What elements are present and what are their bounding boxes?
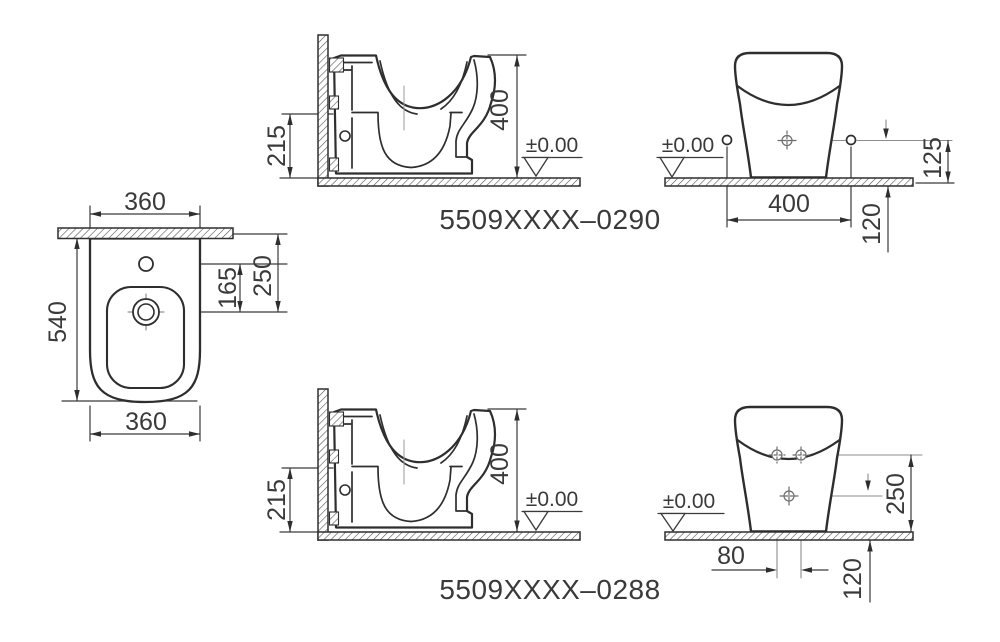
rear-0290-dim-outlet-offset: 120 xyxy=(858,203,886,245)
section-view-0288: 215 400 ±0.00 5509XXXX–0288 xyxy=(263,389,661,605)
rear-0290-floor-bar xyxy=(665,178,913,186)
plan-wall-bar xyxy=(58,228,233,239)
rear-0288-datum-icon xyxy=(661,514,685,532)
section-0290-wall-bar xyxy=(318,35,328,186)
section-0290-floor-bar xyxy=(318,178,580,186)
rear-0288-body xyxy=(735,407,842,532)
rear-0288-dim-hole-span: 80 xyxy=(717,542,745,570)
plan-dim-tap-to-drain: 165 xyxy=(214,267,242,309)
technical-drawing-page: 360 540 165 250 360 215 400 ±0.00 xyxy=(0,0,1000,642)
rear-view-0288: 80 120 250 ±0.00 xyxy=(658,407,922,602)
tap-hole-icon xyxy=(139,257,153,271)
section-0290-datum-icon xyxy=(524,158,548,177)
rear-0288-datum-label: ±0.00 xyxy=(663,490,715,513)
drain-inner-icon xyxy=(138,304,154,320)
section-view-0290: 215 400 ±0.00 5509XXXX–0290 xyxy=(263,35,661,235)
section-0288-dim-inlet-height: 215 xyxy=(263,479,291,521)
plan-dim-width-top: 360 xyxy=(124,188,166,216)
rear-0290-dim-fixing-height: 125 xyxy=(919,137,947,179)
fixing-hole-right-icon xyxy=(847,136,856,145)
product-code-0288: 5509XXXX–0288 xyxy=(439,574,660,605)
section-0288-dim-rim-height: 400 xyxy=(486,443,514,485)
rear-view-0290: 400 120 125 ±0.00 xyxy=(657,53,954,252)
rear-0288-floor-bar xyxy=(665,532,913,540)
section-0290-dim-inlet-height: 215 xyxy=(263,125,291,167)
section-0288-datum-icon xyxy=(524,512,548,531)
section-0290-body xyxy=(334,56,495,174)
plan-dim-wall-to-drain: 250 xyxy=(249,255,277,297)
section-0288-body xyxy=(334,410,495,528)
section-0290-dim-rim-height: 400 xyxy=(486,89,514,131)
fixing-hole-left-icon xyxy=(723,136,732,145)
section-0288-inlet-hole-icon xyxy=(340,485,350,495)
rear-0290-body xyxy=(735,53,842,178)
plan-dim-depth: 540 xyxy=(44,301,72,343)
rear-0290-datum-icon xyxy=(660,158,684,178)
section-0288-datum-label: ±0.00 xyxy=(526,488,578,511)
section-0288-floor-bar xyxy=(318,532,580,540)
rear-0290-datum-label: ±0.00 xyxy=(662,134,714,157)
section-0290-inlet-hole-icon xyxy=(340,131,350,141)
plan-dim-width-bottom: 360 xyxy=(125,408,167,436)
rear-0288-dim-supply-height: 250 xyxy=(882,473,910,515)
rear-0288-dim-outlet-offset: 120 xyxy=(839,558,867,600)
rear-0290-dim-fixing-span: 400 xyxy=(768,190,810,218)
product-code-0290: 5509XXXX–0290 xyxy=(439,204,660,235)
bidet-technical-drawing: 360 540 165 250 360 215 400 ±0.00 xyxy=(0,0,1000,642)
plan-view: 360 540 165 250 360 xyxy=(44,188,287,441)
section-0290-datum-label: ±0.00 xyxy=(526,134,578,157)
section-0288-wall-bar xyxy=(318,389,328,540)
